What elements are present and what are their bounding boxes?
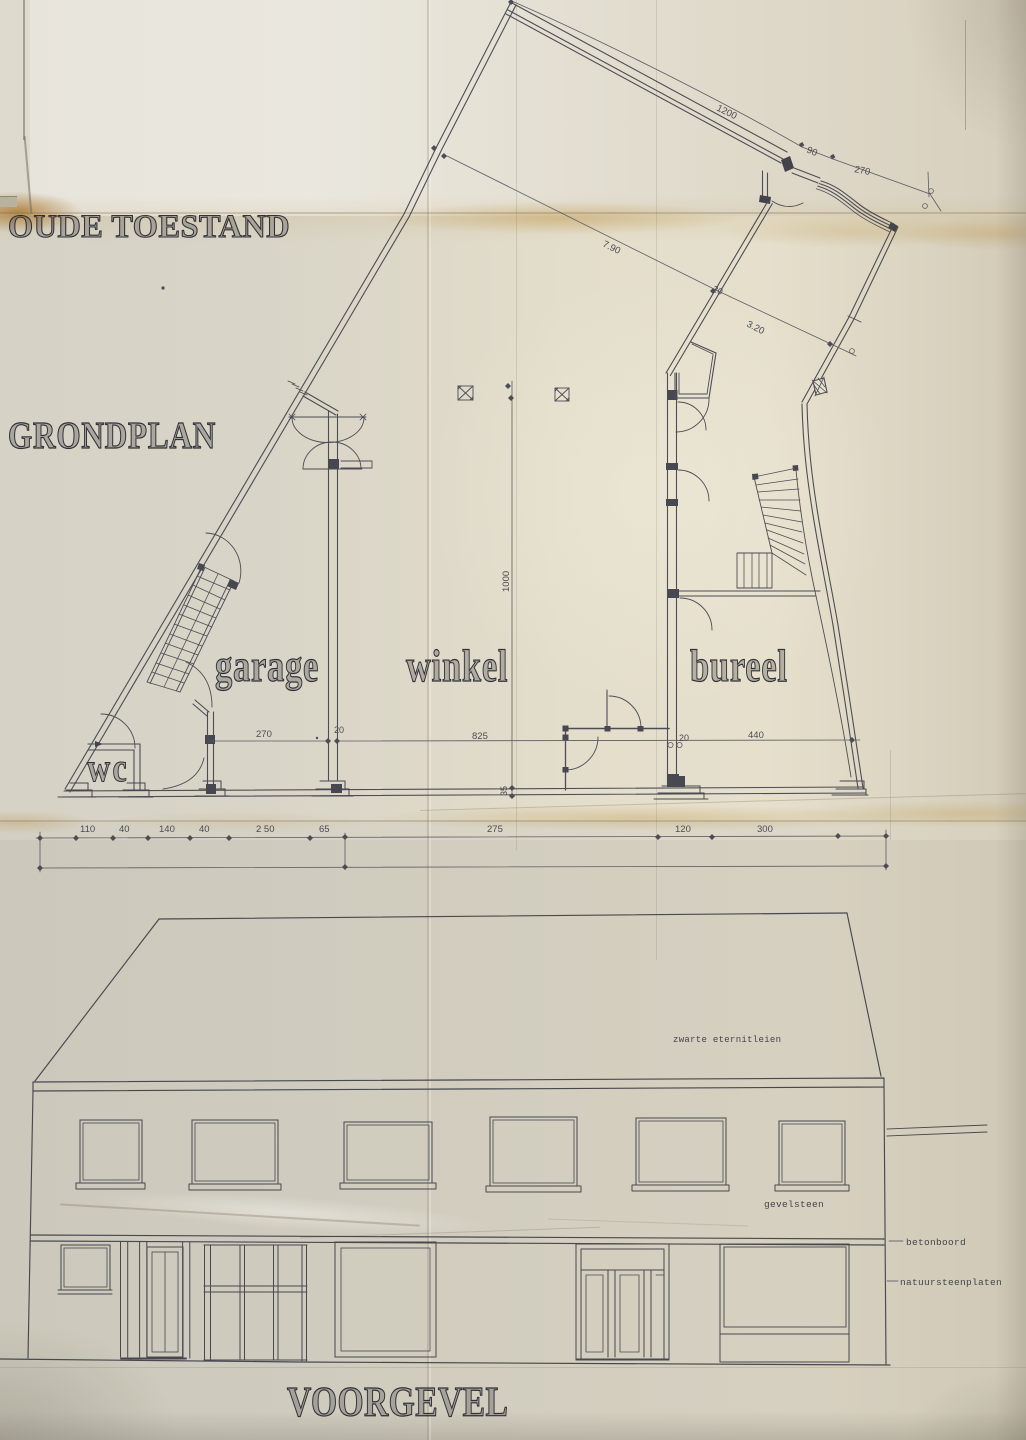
svg-text:betonboord: betonboord — [906, 1237, 966, 1248]
svg-text:wc: wc — [87, 746, 129, 790]
svg-text:440: 440 — [748, 730, 764, 741]
svg-text:gevelsteen: gevelsteen — [764, 1199, 824, 1210]
svg-text:40: 40 — [119, 824, 130, 835]
svg-text:275: 275 — [487, 824, 503, 835]
svg-text:garage: garage — [215, 640, 319, 691]
svg-text:1000: 1000 — [501, 571, 512, 592]
svg-text:825: 825 — [472, 731, 488, 742]
svg-text:20: 20 — [334, 725, 344, 735]
svg-text:winkel: winkel — [406, 640, 508, 691]
svg-text:20: 20 — [711, 284, 724, 297]
svg-text:40: 40 — [199, 824, 210, 835]
svg-text:OUDE TOESTAND: OUDE TOESTAND — [8, 209, 290, 245]
svg-text:natuursteenplaten: natuursteenplaten — [900, 1277, 1002, 1288]
svg-text:65: 65 — [319, 824, 330, 835]
svg-text:20: 20 — [679, 733, 689, 743]
svg-text:VOORGEVEL: VOORGEVEL — [287, 1380, 508, 1426]
svg-text:110: 110 — [80, 824, 95, 835]
svg-text:3.20: 3.20 — [745, 319, 766, 337]
svg-text:90: 90 — [805, 145, 819, 159]
svg-text:270: 270 — [256, 729, 272, 740]
svg-text:2 50: 2 50 — [256, 824, 275, 835]
svg-text:300: 300 — [757, 824, 773, 835]
svg-text:zwarte eternitleien: zwarte eternitleien — [673, 1035, 781, 1045]
svg-text:bureel: bureel — [690, 640, 788, 691]
svg-text:140: 140 — [159, 824, 175, 835]
svg-text:35: 35 — [499, 786, 509, 796]
svg-text:GRONDPLAN: GRONDPLAN — [8, 414, 216, 457]
svg-text:270: 270 — [853, 164, 871, 178]
svg-text:120: 120 — [675, 824, 691, 835]
